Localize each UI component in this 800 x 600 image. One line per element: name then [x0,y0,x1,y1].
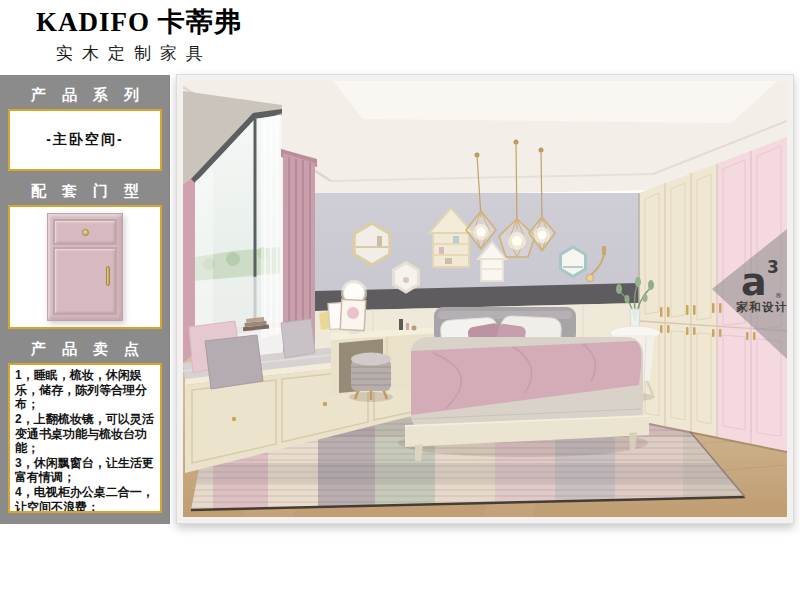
hexagon-shelf-2 [394,263,419,293]
drawer-knob-icon [82,229,89,236]
watermark-logo-exp: 3 [767,257,779,277]
door-type-label: 配套门型 [0,181,170,201]
series-value-box: -主卧空间- [8,109,162,171]
hexagon-shelf-1 [354,223,390,265]
selling-point-2: 2，上翻梳妆镜，可以灵活变通书桌功能与梳妆台功能； [15,412,155,456]
door-face [53,247,117,315]
series-value: -主卧空间- [46,131,123,149]
bedroom-render: a 3 ® 家和设计 [183,81,787,517]
watermark-logo-reg: ® [775,292,782,300]
seat-knob-icon [232,417,236,421]
selling-point-4: 4，电视柜办公桌二合一，让空间不浪费； [15,485,155,513]
selling-point-1: 1，睡眠，梳妆，休闲娱乐，储存，陈列等合理分布； [15,368,155,412]
seat-knob-icon [323,402,327,406]
sheer-curtain [261,113,282,339]
series-label: 产品系列 [0,85,170,105]
sheer-curtain-left [195,169,213,339]
selling-point-3: 3，休闲飘窗台，让生活更富有情调； [15,456,155,485]
sidebar: 产品系列 -主卧空间- 配套门型 产品卖点 1，睡眠，梳妆，休闲娱乐，储存，陈列… [0,75,170,524]
watermark-logo-sub: 家和设计 [736,300,787,314]
hexagon-shelf-3 [561,247,586,277]
door-panel [47,213,123,321]
vanity-stool [349,353,393,403]
bedroom-render-frame: a 3 ® 家和设计 [176,74,794,524]
selling-points-label: 产品卖点 [0,339,170,359]
watermark-logo-a: a [741,260,767,304]
door-drawer [53,219,117,245]
door-handle-icon [106,266,110,286]
desk-art-frames [328,299,366,330]
selling-points-box: 1，睡眠，梳妆，休闲娱乐，储存，陈列等合理分布； 2，上翻梳妆镜，可以灵活变通书… [8,363,162,513]
brand-subtitle: 实木定制家具 [56,42,212,65]
door-panel-box [8,205,162,329]
brand-title: KADIFO 卡蒂弗 [36,4,242,40]
